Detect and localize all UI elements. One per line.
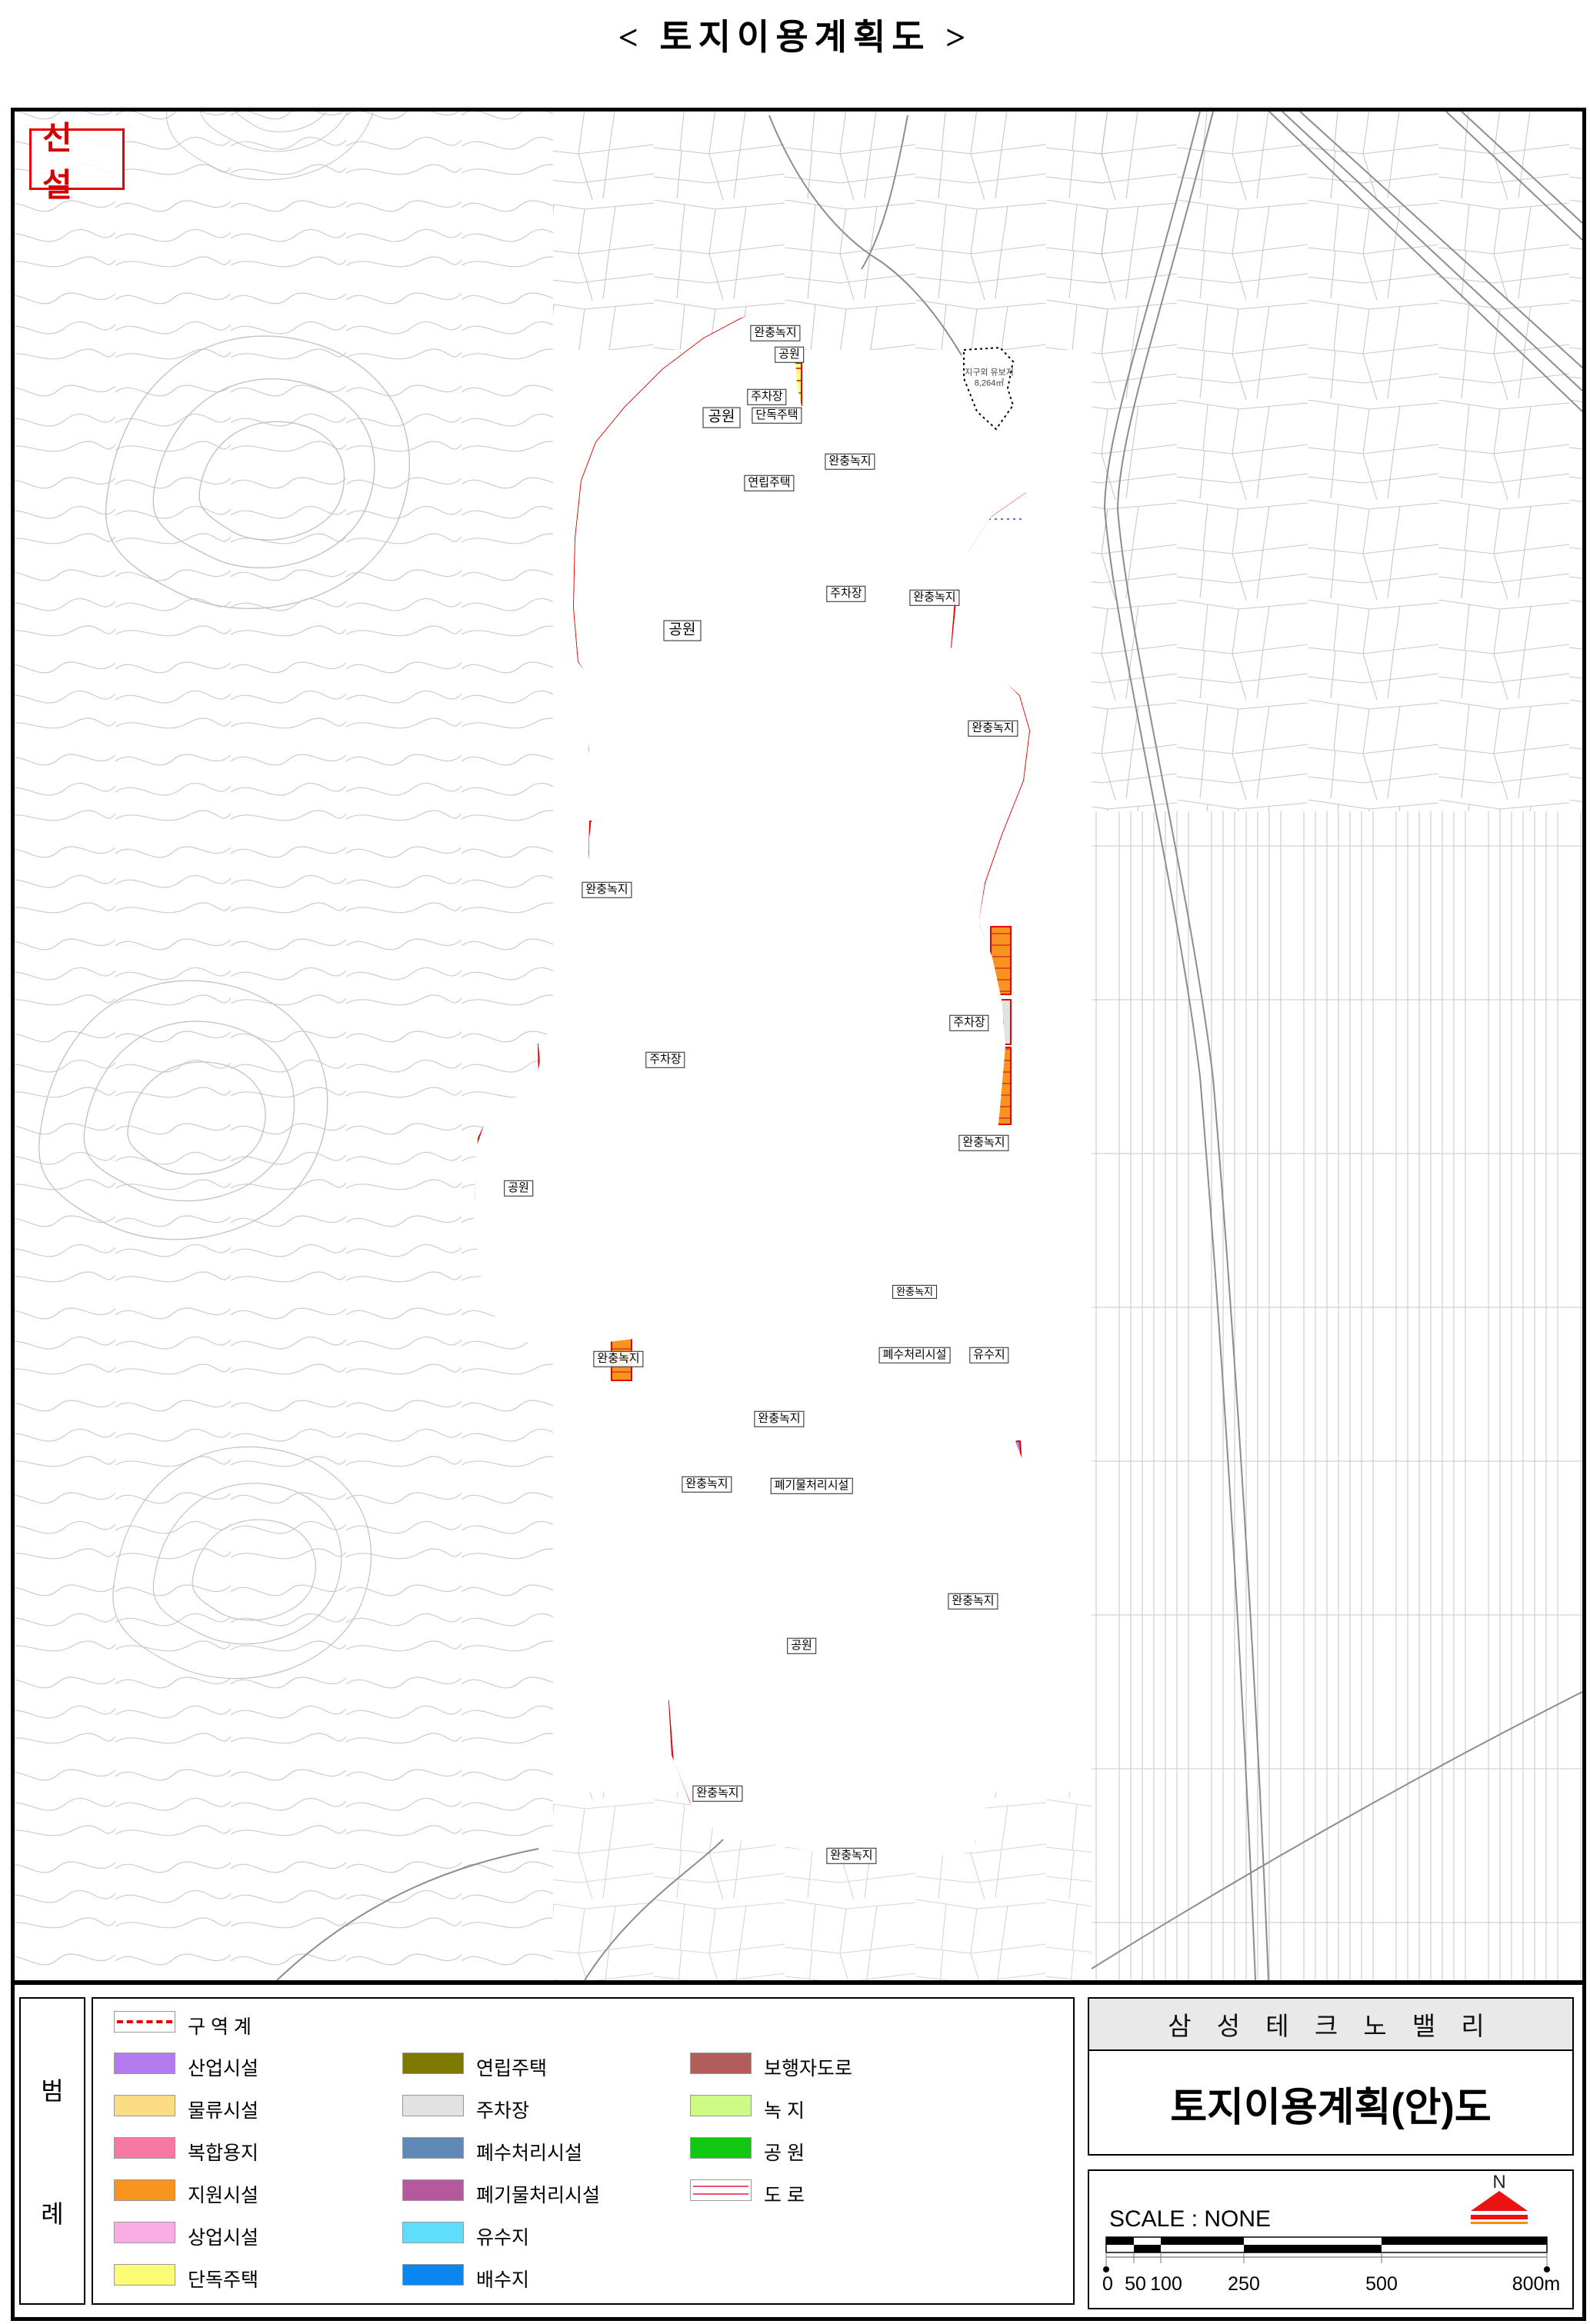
annex-note-line1: 지구외 유보지 <box>965 368 1014 378</box>
svg-text:50: 50 <box>1125 2273 1146 2295</box>
boundary-line-swatch <box>114 2011 175 2033</box>
map-label-buffer: 완충녹지 <box>692 1786 742 1802</box>
color-swatch <box>402 2222 464 2243</box>
color-swatch <box>402 2053 464 2074</box>
map-label-buffer: 완충녹지 <box>909 590 959 606</box>
page-title: < 토지이용계획도 > <box>0 9 1590 60</box>
color-swatch <box>114 2137 175 2159</box>
color-swatch <box>114 2179 175 2201</box>
map-label-pond: 유수지 <box>969 1347 1008 1363</box>
legend-title-char: 범 <box>21 2072 84 2107</box>
legend-panel: 구 역 계 산업시설 물류시설 복합용지 지원시설 상업시설 단독주택 연립주택… <box>92 1997 1075 2305</box>
landuse-plan-sheet: { "page": { "title": "< 토지이용계획도 >" }, "m… <box>0 0 1590 2324</box>
map-label-buffer: 완충녹지 <box>826 1848 876 1864</box>
svg-text:N: N <box>1492 2172 1505 2192</box>
color-swatch <box>402 2137 464 2159</box>
color-swatch <box>402 2264 464 2286</box>
map-label-wastewater: 폐수처리시설 <box>879 1347 951 1363</box>
title-block: 삼 성 테 크 노 밸 리 토지이용계획(안)도 <box>1088 1997 1574 2156</box>
color-swatch <box>402 2095 464 2116</box>
map-label-parking: 주차장 <box>747 389 786 405</box>
road-swatch <box>690 2179 752 2201</box>
map-label-park: 공원 <box>787 1638 816 1654</box>
svg-text:0: 0 <box>1102 2273 1113 2295</box>
scale-bar-segments <box>1103 2237 1550 2272</box>
sheet-footer: 범 례 구 역 계 산업시설 물류시설 복합용지 지원시설 상업시설 단독주택 <box>11 1980 1586 2321</box>
map-label-parking: 주차장 <box>949 1015 988 1031</box>
map-label-park: 공원 <box>775 347 804 363</box>
district-boundary <box>474 308 1029 1860</box>
annex-note-line2: 8,264㎡ <box>975 379 1005 388</box>
drawing-title: 토지이용계획(안)도 <box>1089 2051 1572 2156</box>
legend-title-char: 례 <box>21 2195 84 2230</box>
svg-text:100: 100 <box>1150 2273 1182 2295</box>
map-label-buffer: 완충녹지 <box>754 1411 804 1427</box>
svg-text:250: 250 <box>1228 2273 1260 2295</box>
scale-block: SCALE : NONE N 0 50 100 250 <box>1088 2169 1574 2309</box>
map-label-buffer: 완충녹지 <box>582 882 632 898</box>
color-swatch <box>402 2179 464 2201</box>
svg-text:500: 500 <box>1365 2273 1398 2295</box>
scale-bar: SCALE : NONE N 0 50 100 250 <box>1089 2171 1572 2308</box>
corner-tag-new: 신 설 <box>29 128 125 190</box>
color-swatch <box>114 2095 175 2116</box>
map-label-parking: 주차장 <box>826 586 865 602</box>
annex-note: 지구외 유보지 8,264㎡ <box>965 368 1014 390</box>
scale-label: SCALE : NONE <box>1109 2206 1271 2232</box>
map-label-park: 공원 <box>504 1180 533 1197</box>
color-swatch <box>690 2137 752 2159</box>
map-label-buffer: 완충녹지 <box>892 1285 937 1299</box>
color-swatch <box>690 2095 752 2116</box>
map-label-buffer: 완충녹지 <box>750 325 800 341</box>
map-label-buffer: 완충녹지 <box>682 1477 732 1493</box>
project-name: 삼 성 테 크 노 밸 리 <box>1089 1999 1572 2051</box>
color-swatch <box>114 2222 175 2243</box>
scale-tick-labels: 0 50 100 250 500 800m <box>1102 2273 1560 2295</box>
svg-text:800m: 800m <box>1512 2273 1561 2295</box>
map-label-buffer: 완충녹지 <box>958 1135 1008 1151</box>
legend-panel-title: 범 례 <box>19 1997 85 2305</box>
map-label-waste: 폐기물처리시설 <box>771 1478 853 1494</box>
map-canvas <box>11 108 1586 1984</box>
landuse-map-drawing <box>15 112 1582 1980</box>
map-label-buffer: 완충녹지 <box>825 454 875 470</box>
north-arrow-icon: N <box>1471 2172 1528 2224</box>
color-swatch <box>690 2053 752 2074</box>
map-label-park: 공원 <box>703 408 741 428</box>
map-label-buffer: 완충녹지 <box>593 1351 643 1367</box>
color-swatch <box>114 2264 175 2286</box>
map-label-buffer: 완충녹지 <box>948 1593 998 1610</box>
map-label-rowhouse: 연립주택 <box>744 475 794 491</box>
map-label-house: 단독주택 <box>752 408 802 424</box>
map-label-buffer: 완충녹지 <box>968 721 1018 737</box>
map-label-parking: 주차장 <box>645 1052 685 1068</box>
color-swatch <box>114 2053 175 2074</box>
map-label-park: 공원 <box>664 621 702 641</box>
